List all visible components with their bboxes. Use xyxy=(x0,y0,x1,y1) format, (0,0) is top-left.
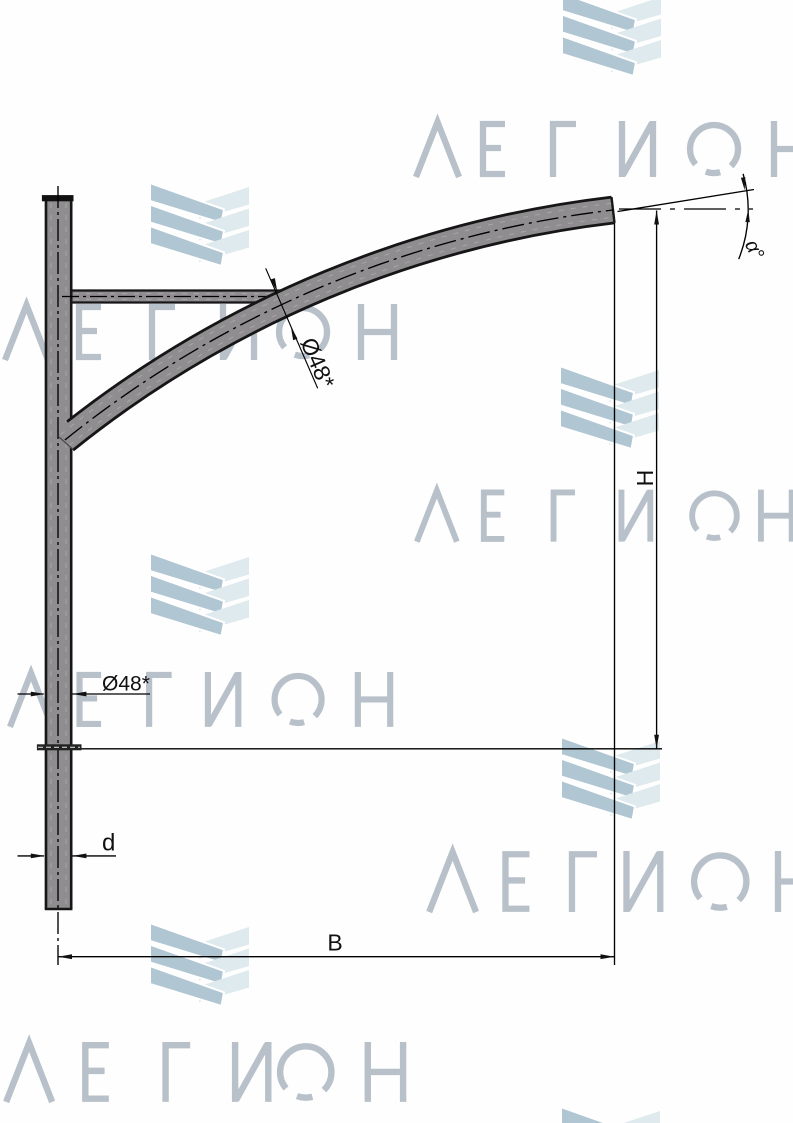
svg-text:d: d xyxy=(102,830,115,857)
svg-text:Ø48*: Ø48* xyxy=(102,673,150,696)
svg-text:H: H xyxy=(632,470,658,487)
svg-text:B: B xyxy=(327,930,342,956)
